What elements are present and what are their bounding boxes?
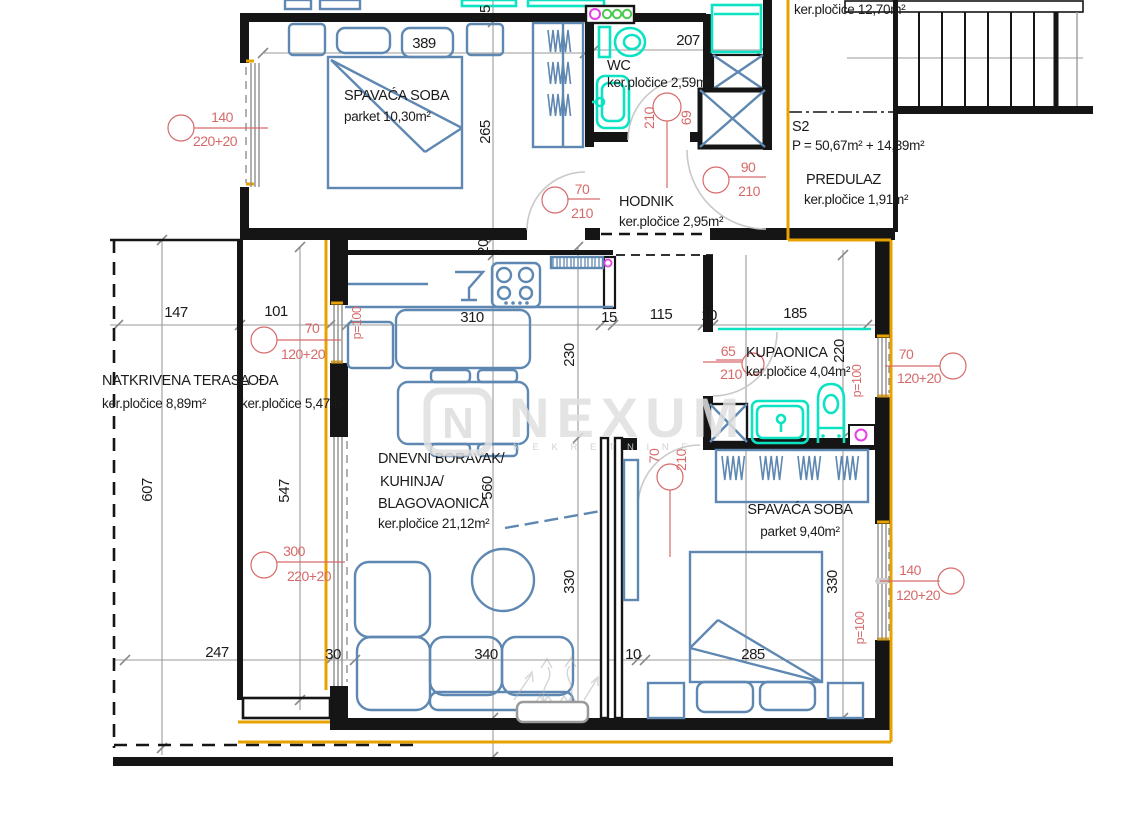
svg-text:300: 300 bbox=[283, 543, 306, 559]
svg-text:210: 210 bbox=[720, 366, 743, 382]
window-label-bedroom2: 140 120+20 p=100 bbox=[853, 562, 964, 644]
svg-text:65: 65 bbox=[721, 343, 736, 359]
svg-text:220+20: 220+20 bbox=[287, 568, 332, 584]
floor-plan-drawing: 140 220+20 70 210 210 69 90 210 70 120+2… bbox=[0, 0, 1131, 819]
svg-text:70: 70 bbox=[305, 320, 320, 336]
svg-text:607: 607 bbox=[139, 478, 156, 502]
room-name-lodja: LOĐA bbox=[240, 373, 279, 389]
chair bbox=[478, 370, 517, 382]
coffee-table bbox=[472, 549, 534, 611]
window-label-bedroom1: 140 220+20 bbox=[168, 109, 268, 149]
svg-text:p=100: p=100 bbox=[850, 364, 864, 397]
wardrobe-1 bbox=[533, 23, 583, 147]
svg-text:120+20: 120+20 bbox=[896, 587, 941, 603]
kitchen-sink bbox=[455, 272, 483, 300]
svg-text:10: 10 bbox=[625, 646, 641, 663]
cushion bbox=[697, 682, 753, 712]
unit-area: P = 50,67m² + 14,39m² bbox=[792, 138, 925, 153]
room-finish-bedroom1: parket 10,30m² bbox=[344, 109, 431, 124]
vent-box bbox=[849, 425, 875, 446]
shelf bbox=[289, 24, 325, 55]
room-labels: SPAVAĆA SOBA parket 10,30m² WC ker.ploči… bbox=[102, 2, 925, 539]
svg-text:10: 10 bbox=[701, 307, 717, 324]
svg-text:15: 15 bbox=[601, 309, 617, 326]
svg-text:220+20: 220+20 bbox=[193, 133, 238, 149]
door-label-wc: 210 69 bbox=[641, 93, 694, 188]
shafts bbox=[700, 55, 765, 442]
door-label-lodja: 300 220+20 bbox=[251, 543, 345, 584]
svg-text:285: 285 bbox=[741, 646, 765, 663]
svg-text:330: 330 bbox=[561, 570, 578, 594]
room-finish-hodnik: ker.pločice 2,95m² bbox=[619, 214, 724, 229]
decor-sketch bbox=[514, 658, 598, 705]
svg-text:210: 210 bbox=[738, 183, 761, 199]
svg-text:69: 69 bbox=[678, 110, 694, 125]
room-finish-living: ker.pločice 21,12m² bbox=[378, 516, 490, 531]
sofa bbox=[502, 637, 573, 695]
room-name-bedroom2: SPAVAĆA SOBA bbox=[747, 501, 853, 518]
watermark-tagline: N E K R E T N I N E bbox=[513, 442, 693, 453]
svg-text:p=100: p=100 bbox=[853, 611, 867, 644]
door-label-hodnik: 90 210 bbox=[703, 159, 766, 199]
room-name-living-3: BLAGOVAONICA bbox=[378, 496, 489, 512]
room-name-bedroom1: SPAVAĆA SOBA bbox=[344, 87, 450, 104]
svg-text:25: 25 bbox=[477, 5, 494, 21]
svg-text:210: 210 bbox=[641, 106, 657, 129]
hangers-2 bbox=[722, 456, 858, 480]
svg-text:185: 185 bbox=[783, 305, 807, 322]
room-finish-kupaonica: ker.pločice 4,04m² bbox=[746, 364, 851, 379]
room-name-living-2: KUHINJA/ bbox=[380, 474, 445, 490]
room-finish-lodja: ker.pločice 5,47m² bbox=[241, 396, 346, 411]
watermark-logo-letter: N bbox=[442, 399, 474, 448]
svg-text:70: 70 bbox=[575, 181, 590, 197]
door-label-bedroom1: 70 210 bbox=[542, 181, 600, 221]
svg-text:90: 90 bbox=[741, 159, 756, 175]
svg-text:389: 389 bbox=[412, 35, 436, 52]
room-finish-wc: ker.pločice 2,59m² bbox=[607, 75, 712, 90]
svg-text:207: 207 bbox=[676, 32, 700, 49]
svg-text:220: 220 bbox=[831, 339, 848, 363]
sofa bbox=[357, 637, 430, 710]
room-finish-terasa: ker.pločice 8,89m² bbox=[102, 396, 207, 411]
chair bbox=[431, 370, 470, 382]
svg-text:230: 230 bbox=[561, 343, 578, 367]
window-label-kupaonica: 70 120+20 p=100 bbox=[850, 346, 966, 397]
svg-text:30: 30 bbox=[325, 646, 341, 663]
washer bbox=[712, 5, 761, 52]
hangers-1 bbox=[548, 30, 571, 116]
nightstand bbox=[648, 683, 684, 718]
svg-text:70: 70 bbox=[899, 346, 914, 362]
room-finish-predulaz: ker.pločice 1,91m² bbox=[804, 192, 909, 207]
room-name-predulaz: PREDULAZ bbox=[806, 172, 881, 188]
wc-tank bbox=[599, 27, 610, 57]
room-name-terasa: NATKRIVENA TERASA bbox=[102, 373, 250, 389]
room-name-wc: WC bbox=[607, 58, 631, 74]
cushion bbox=[760, 682, 815, 710]
svg-text:547: 547 bbox=[276, 479, 293, 503]
svg-text:101: 101 bbox=[264, 303, 288, 320]
floor-plan-page: 140 220+20 70 210 210 69 90 210 70 120+2… bbox=[0, 0, 1131, 819]
shelf bbox=[337, 28, 390, 53]
svg-text:115: 115 bbox=[650, 306, 673, 323]
unit-id: S2 bbox=[792, 119, 809, 135]
svg-text:20: 20 bbox=[475, 239, 492, 255]
nightstand bbox=[828, 683, 863, 718]
svg-text:247: 247 bbox=[205, 644, 229, 661]
svg-text:140: 140 bbox=[899, 562, 922, 578]
sofa bbox=[355, 562, 430, 637]
svg-text:265: 265 bbox=[477, 120, 494, 144]
svg-text:330: 330 bbox=[824, 570, 841, 594]
radiator bbox=[517, 702, 588, 722]
closet-strip bbox=[624, 460, 638, 600]
room-finish-stair-hall: ker.pločice 12,70m² bbox=[794, 2, 906, 17]
svg-text:p=100: p=100 bbox=[350, 306, 364, 339]
svg-text:120+20: 120+20 bbox=[897, 370, 942, 386]
svg-text:147: 147 bbox=[164, 304, 188, 321]
svg-text:210: 210 bbox=[571, 205, 594, 221]
room-name-kupaonica: KUPAONICA bbox=[746, 345, 828, 361]
door-label-bedroom2: 70 210 bbox=[646, 448, 689, 557]
shelf bbox=[467, 24, 503, 55]
svg-text:120+20: 120+20 bbox=[281, 346, 326, 362]
svg-text:310: 310 bbox=[460, 309, 484, 326]
svg-text:140: 140 bbox=[211, 109, 234, 125]
watermark-brand: NEXUM bbox=[509, 386, 746, 449]
svg-text:340: 340 bbox=[474, 646, 498, 663]
room-name-hodnik: HODNIK bbox=[619, 194, 674, 210]
room-finish-bedroom2: parket 9,40m² bbox=[760, 524, 840, 539]
